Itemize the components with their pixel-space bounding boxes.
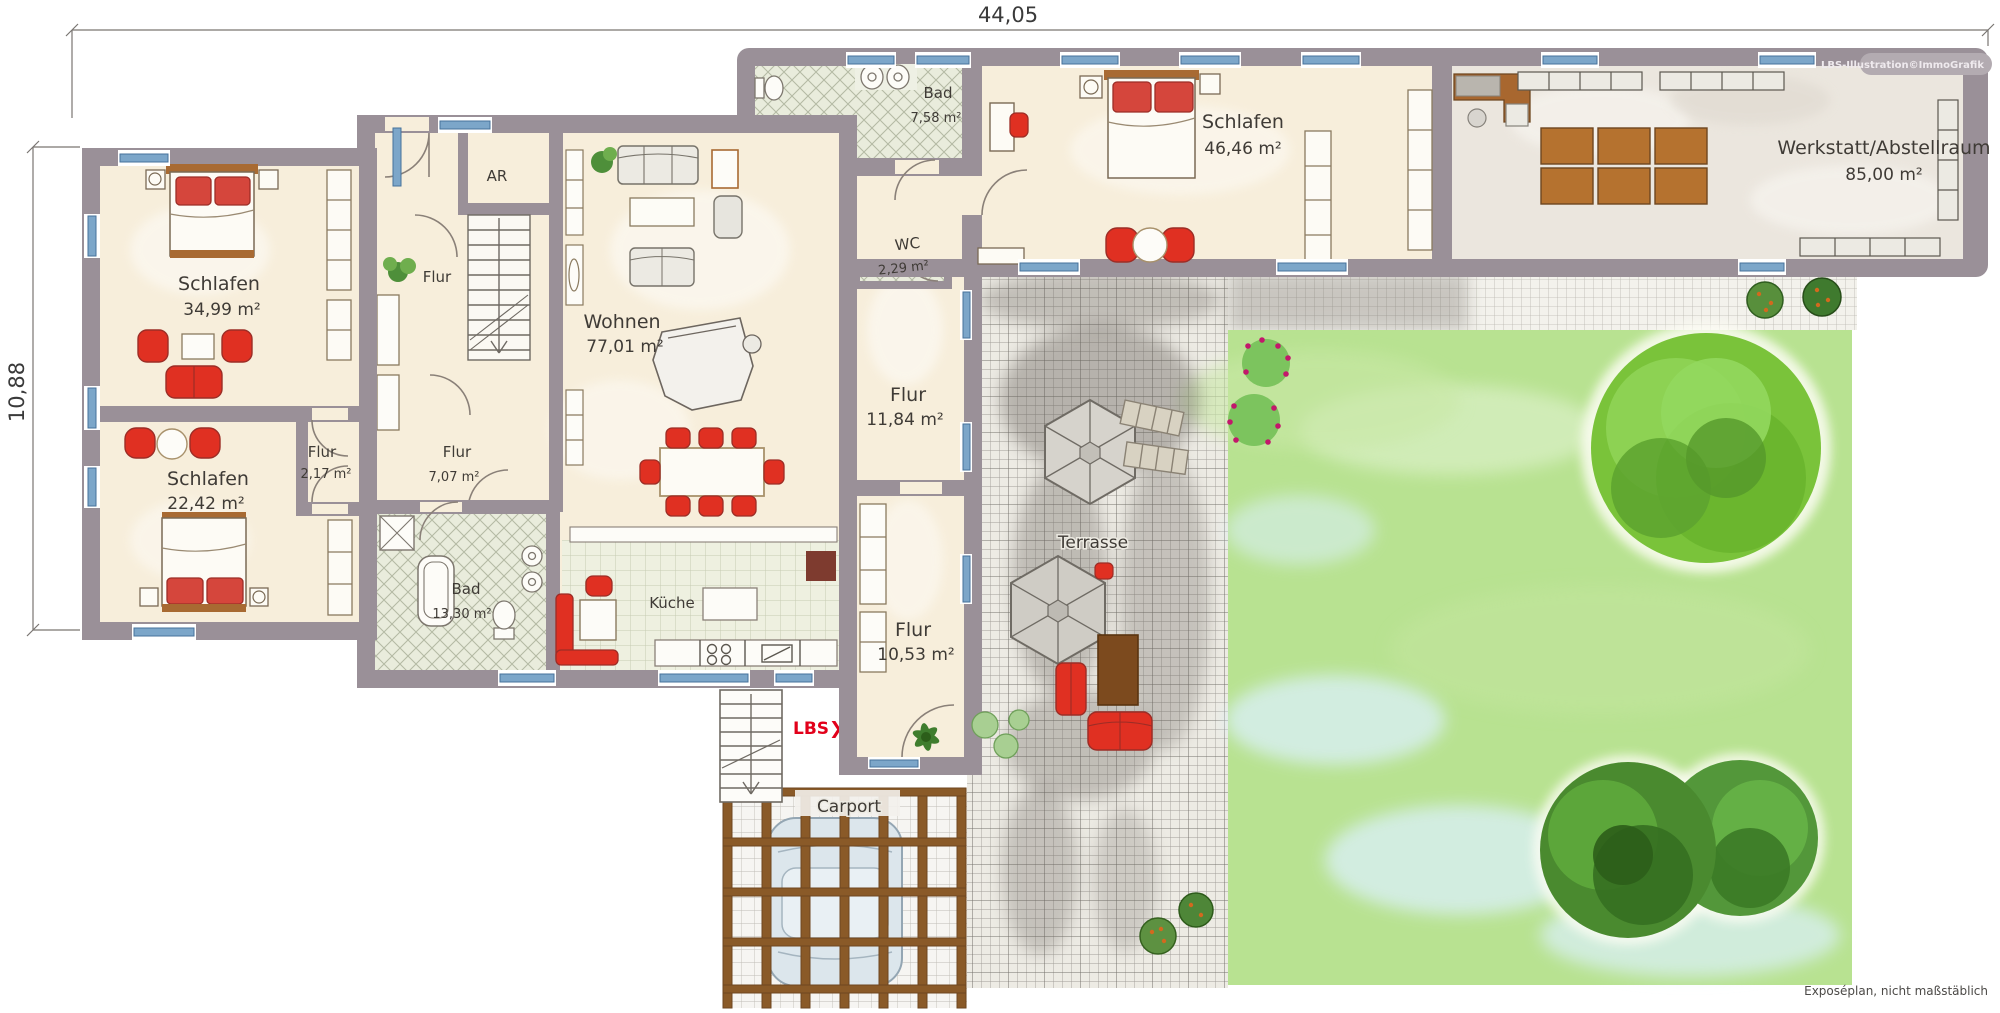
toilet-icon [493,601,515,639]
sofa-north [618,146,698,184]
toilet-icon [755,76,783,100]
wardrobe-col2 [328,520,352,615]
carport-label: Carport [817,797,881,817]
wing-middle: Wohnen 77,01 m² [357,115,857,688]
double-bed [1104,70,1199,178]
room-label-flur1053: Flur [895,619,931,641]
coffee-table [630,198,694,226]
carport: Carport [723,788,967,1008]
room-label-wohnen: Wohnen [583,311,660,333]
room-area-schlafen3499: 34,99 m² [183,300,260,320]
plant-icon-2 [603,147,617,161]
room-area-werkstatt: 85,00 m² [1845,165,1922,185]
tree-dark-pair [1530,735,1850,955]
room-area-bad758: 7,58 m² [911,111,962,126]
lbs-logo-text: LBS [793,719,829,739]
floorplan-page: Carport LBS ❯ [0,0,2000,1013]
footer-note: Exposéplan, nicht maßstäblich [1804,984,1988,998]
sitting-set [1106,228,1194,262]
room-label-ar: AR [487,167,508,185]
room-label-bad1330: Bad [451,580,480,598]
hall-sideboards [377,295,399,430]
room-label-flur707: Flur [443,443,472,461]
room-area-schlafen4646: 46,46 m² [1204,139,1281,159]
room-label-kueche: Küche [649,594,695,612]
exterior-stairs [720,690,782,802]
room-area-schlafen2242: 22,42 m² [167,494,244,514]
floorplan-canvas: Carport LBS ❯ [0,0,2000,1013]
room-area-flur1053: 10,53 m² [877,645,954,665]
room-label-flur217: Flur [308,443,337,461]
room-area-flur707: 7,07 m² [429,470,480,485]
room-label-schlafen2242: Schlafen [167,468,249,490]
wing-right: Bad 7,58 m² [737,48,1991,277]
picture-frame [712,150,738,188]
shower-icon [380,516,414,550]
interior-stairs [468,215,530,360]
dimension-height-label: 10,88 [5,362,29,422]
room-label-wc: WC [894,234,921,255]
room-label-flur-hall: Flur [423,268,452,286]
room-area-flur1184: 11,84 m² [866,410,943,430]
kitchen-column [806,551,836,581]
room-kueche: Küche [556,527,839,670]
room-label-werkstatt: Werkstatt/Abstellraum [1777,137,1990,159]
terrace-label: Terrasse [1057,533,1128,553]
kitchen-island [703,588,757,620]
room-label-schlafen3499: Schlafen [178,273,260,295]
desk-chair [1010,113,1028,137]
lbs-logo: LBS ❯ [793,719,843,739]
kitchen-counter [655,640,837,666]
wing-left: Schlafen 34,99 m² Schlafen 22,42 m² Flur… [82,148,377,640]
room-area-bad1330: 13,30 m² [432,607,491,622]
room-area-wohnen: 77,01 m² [586,337,663,357]
room-area-flur217: 2,17 m² [301,467,352,482]
wardrobe-col [327,170,351,360]
sofa-second [630,248,694,286]
tree-large [1581,323,1831,573]
watermark-text: LBS-Illustration©ImmoGrafik [1821,60,1984,71]
room-bad1330: Bad 13,30 m² [375,500,560,670]
dimension-width-label: 44,05 [978,3,1038,27]
armchair [714,196,742,238]
room-label-bad758: Bad [923,84,952,102]
room-label-schlafen4646: Schlafen [1202,111,1284,133]
room-label-flur1184: Flur [890,384,926,406]
